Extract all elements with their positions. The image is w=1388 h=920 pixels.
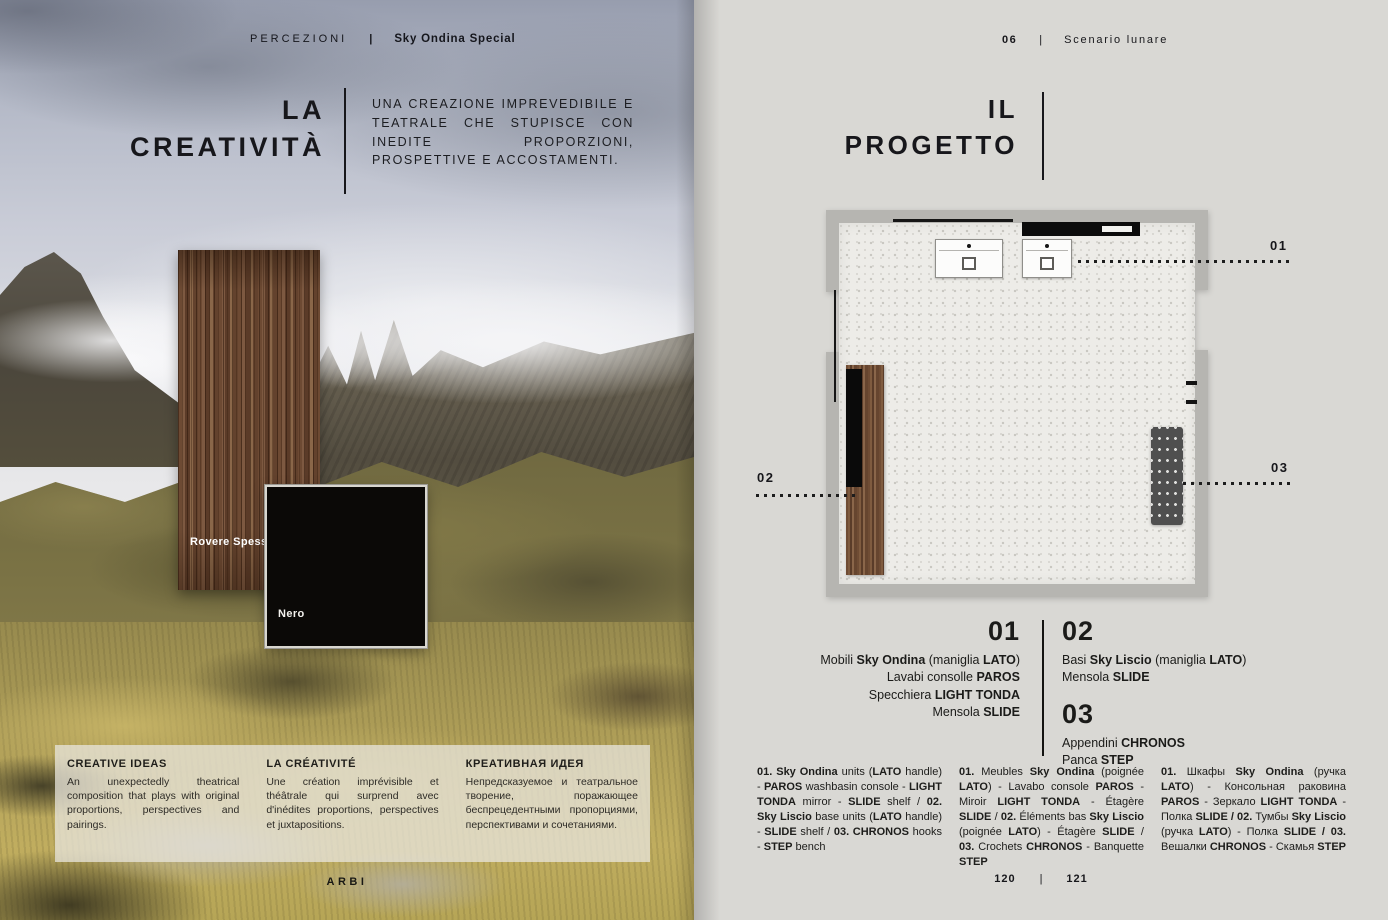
- page-number-right: 121: [1066, 873, 1087, 885]
- header-separator: |: [1039, 34, 1042, 46]
- plan-wall-left-upper: [826, 210, 839, 292]
- basin-rim-line: [1026, 250, 1068, 251]
- title-divider-rule: [344, 88, 346, 194]
- caption-en-body: An unexpectedly theatrical composition t…: [67, 775, 239, 832]
- page-title-left: LA CREATIVITÀ: [40, 92, 325, 167]
- shelf-bar-icon: [1022, 222, 1140, 236]
- callout-label-03: 03: [1271, 460, 1288, 475]
- legend-divider: [1042, 620, 1044, 756]
- hooks-panel-icon: [1151, 427, 1183, 525]
- floor-plan: [826, 210, 1208, 597]
- legend-line: Lavabi consolle PAROS: [734, 669, 1020, 686]
- callout-leader-01: [1078, 260, 1290, 263]
- caption-en-title: CREATIVE IDEAS: [67, 758, 239, 770]
- drain-square-icon: [1040, 257, 1054, 270]
- left-page-header: PERCEZIONI | Sky Ondina Special: [250, 33, 515, 45]
- caption-en: CREATIVE IDEAS An unexpectedly theatrica…: [67, 758, 239, 849]
- title-divider-rule: [1042, 92, 1044, 180]
- caption-ru: КРЕАТИВНАЯ ИДЕЯ Непредсказуемое и театра…: [466, 758, 638, 849]
- footnote-en: 01. Sky Ondina units (LATO handle) - PAR…: [757, 765, 942, 870]
- wall-fixture-mark: [1186, 400, 1197, 404]
- title-line-1: IL: [754, 92, 1018, 128]
- caption-fr: LA CRÉATIVITÉ Une création imprévisible …: [266, 758, 438, 849]
- caption-fr-title: LA CRÉATIVITÉ: [266, 758, 438, 770]
- edition-label: Sky Ondina Special: [394, 33, 515, 45]
- callout-label-02: 02: [757, 470, 774, 485]
- sample-label-black: Nero: [278, 608, 305, 620]
- page-number-footer: 120 | 121: [694, 873, 1388, 885]
- photo-fog: [0, 255, 694, 445]
- shelf-inset-detail: [1102, 226, 1132, 232]
- legend-line: Basi Sky Liscio (maniglia LATO): [1062, 652, 1324, 669]
- legend-line: Mensola SLIDE: [1062, 669, 1324, 686]
- legend-number: 01: [734, 618, 1020, 645]
- callout-leader-02: [756, 494, 859, 497]
- translations-box: CREATIVE IDEAS An unexpectedly theatrica…: [55, 745, 650, 862]
- chapter-number: 06: [1002, 34, 1017, 46]
- plan-floor: [839, 223, 1195, 584]
- caption-ru-title: КРЕАТИВНАЯ ИДЕЯ: [466, 758, 638, 770]
- footer-separator: |: [1040, 873, 1043, 885]
- title-line-2: PROGETTO: [754, 128, 1018, 164]
- footnote-ru: 01. Шкафы Sky Ondina (ручка LATO) - Конс…: [1161, 765, 1346, 870]
- callout-label-01: 01: [1270, 238, 1287, 253]
- legend-line: Specchiera LIGHT TONDA: [734, 687, 1020, 704]
- mirror-icon: [893, 219, 1013, 222]
- washbasin-icon: [935, 239, 1003, 278]
- plan-wall-right-lower: [1195, 350, 1208, 597]
- brand-logo-text: ARBI: [0, 876, 694, 888]
- left-page: PERCEZIONI | Sky Ondina Special LA CREAT…: [0, 0, 694, 920]
- page-title-right: IL PROGETTO: [754, 92, 1018, 164]
- plan-wall-left-lower: [826, 352, 839, 597]
- legend-line: Appendini CHRONOS: [1062, 735, 1324, 752]
- base-unit-wood-icon: [846, 365, 884, 575]
- caption-ru-body: Непредсказуемое и театральное творение, …: [466, 775, 638, 832]
- legend-number: 02: [1062, 618, 1324, 645]
- intro-paragraph: UNA CREAZIONE IMPREVEDIBILE E TEATRALE C…: [372, 95, 634, 170]
- legend-line: Mensola SLIDE: [734, 704, 1020, 721]
- tap-dot-icon: [1045, 244, 1049, 248]
- plan-wall-top: [826, 210, 1208, 223]
- legend-number: 03: [1062, 701, 1324, 728]
- section-label: PERCEZIONI: [250, 33, 347, 45]
- wall-fixture-mark: [1186, 381, 1197, 385]
- plan-wall-bottom: [826, 584, 1208, 597]
- catalog-spread: PERCEZIONI | Sky Ondina Special LA CREAT…: [0, 0, 1388, 920]
- legend-line: Mobili Sky Ondina (maniglia LATO): [734, 652, 1020, 669]
- tap-dot-icon: [967, 244, 971, 248]
- material-sample-black: Nero: [265, 485, 427, 648]
- right-page: 06 | Scenario lunare IL PROGETTO: [694, 0, 1388, 920]
- drain-square-icon: [962, 257, 976, 270]
- chapter-title: Scenario lunare: [1064, 34, 1168, 46]
- header-separator: |: [369, 33, 372, 45]
- callout-leader-03: [1183, 482, 1293, 485]
- right-page-header: 06 | Scenario lunare: [1002, 34, 1168, 46]
- title-line-1: LA: [40, 92, 325, 129]
- door-leaf-line: [834, 290, 836, 402]
- page-number-left: 120: [994, 873, 1015, 885]
- basin-rim-line: [939, 250, 999, 251]
- base-unit-dark-panel: [846, 369, 862, 487]
- washbasin-icon: [1022, 239, 1072, 278]
- plan-wall-right-upper: [1195, 210, 1208, 290]
- footnotes-row: 01. Sky Ondina units (LATO handle) - PAR…: [757, 765, 1347, 870]
- caption-fr-body: Une création imprévisible et théâtrale q…: [266, 775, 438, 832]
- legend-item-01: 01 Mobili Sky Ondina (maniglia LATO) Lav…: [734, 618, 1020, 721]
- footnote-fr: 01. Meubles Sky Ondina (poignée LATO) - …: [959, 765, 1144, 870]
- title-line-2: CREATIVITÀ: [40, 129, 325, 166]
- legend-items-02-03: 02 Basi Sky Liscio (maniglia LATO) Menso…: [1062, 618, 1324, 769]
